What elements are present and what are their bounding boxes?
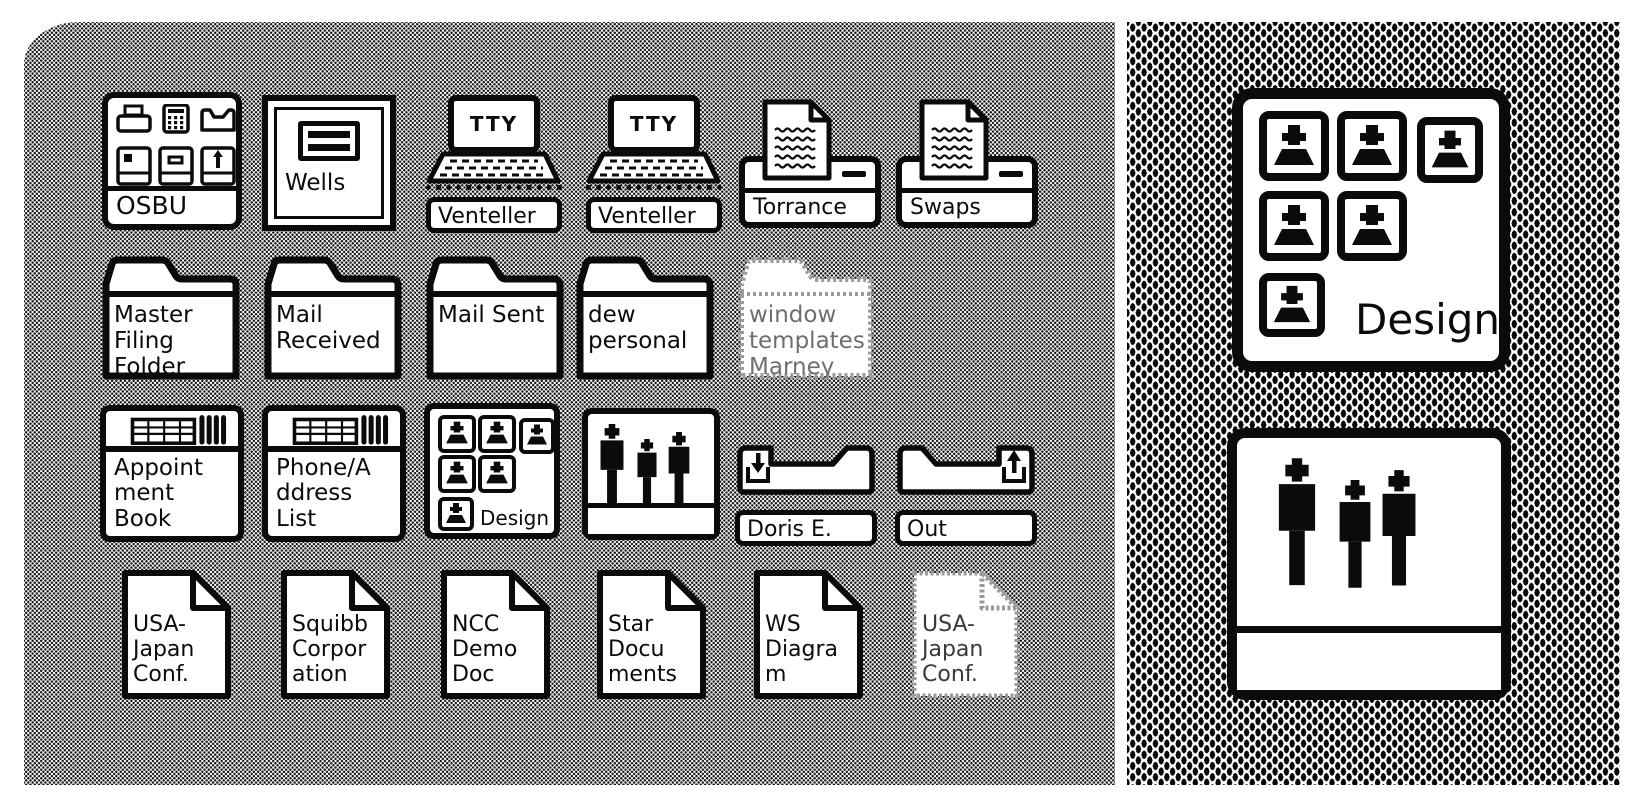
icon-label: USA-Japan Conf. (133, 612, 209, 687)
document-icon (761, 98, 837, 182)
icon-label: Appointment Book (114, 456, 214, 532)
portrait-icon (438, 415, 476, 453)
icon-body: Appointment Book (106, 446, 238, 536)
icon-label: Design (480, 506, 549, 530)
mini-printer-icon (116, 104, 152, 144)
dither-line (586, 185, 722, 190)
folder-icon-dew-personal[interactable]: dew personal (574, 252, 716, 382)
printer-icon-torrance[interactable]: Torrance (739, 98, 881, 228)
icon-label: Venteller (586, 197, 722, 233)
portrait-icon (438, 497, 474, 531)
document-icon-ws-diagram[interactable]: WS Diagram (752, 568, 866, 702)
printer-divider (902, 188, 1032, 193)
icon-label: Swaps (910, 195, 981, 220)
folder-icon-mail-sent[interactable]: Mail Sent (424, 252, 566, 382)
document-icon-usa-japan-conf[interactable]: USA-Japan Conf. (120, 568, 234, 702)
icon-label: Mail Received (276, 302, 394, 354)
folder-icon-mail-received[interactable]: Mail Received (262, 252, 404, 382)
document-icon-star-documents[interactable]: Star Documents (595, 568, 709, 702)
portrait-icon (1259, 273, 1325, 337)
portrait-icon (1417, 117, 1483, 183)
portrait-icon (1337, 111, 1407, 181)
directory-icon-osbu[interactable]: OSBU (102, 92, 242, 230)
document-icon-ncc-demo[interactable]: NCC Demo Doc (439, 568, 553, 702)
magnified-group-directory-icon-design[interactable]: Design (1232, 88, 1510, 372)
icon-label: Out (895, 510, 1037, 546)
mini-record-box-icon (116, 146, 152, 188)
tty-terminal-icon-venteller-2[interactable]: TTY Venteller (586, 95, 722, 233)
tty-terminal-icon-venteller-1[interactable]: TTY Venteller (426, 95, 562, 233)
people-icon-glyph (596, 422, 712, 510)
icon-label: window templates Marney (749, 302, 867, 380)
icon-label: Star Documents (608, 612, 684, 687)
portrait-icon (1337, 191, 1407, 261)
icon-label: OSBU (108, 186, 236, 221)
icon-label: Master Filing Folder (114, 302, 232, 380)
double-bar-icon (298, 121, 360, 161)
document-icon-squibb[interactable]: Squibb Corporation (279, 568, 393, 702)
in-tray-icon-doris[interactable]: Doris E. (735, 440, 877, 546)
card-index-icon (272, 413, 412, 446)
portrait-icon (1259, 191, 1329, 261)
mini-calculator-icon (158, 104, 194, 144)
printer-divider (745, 188, 875, 193)
icon-label: Wells (285, 170, 345, 196)
icon-label: USA-Japan Conf. (922, 612, 998, 687)
portrait-icon (478, 415, 516, 453)
magnified-desktop-area: Design (1127, 22, 1620, 785)
printer-icon-swaps[interactable]: Swaps (896, 98, 1038, 228)
icon-label: Mail Sent (438, 302, 556, 328)
mini-basket-icon (200, 104, 236, 144)
portrait-icon (1259, 111, 1329, 181)
icon-label: Design (1355, 295, 1500, 344)
icon-body: Phone/Address List (268, 446, 400, 536)
icon-label: NCC Demo Doc (452, 612, 528, 687)
icon-label: Torrance (753, 195, 847, 220)
keyboard-icon (426, 151, 562, 185)
icon-label: dew personal (588, 302, 706, 354)
tty-screen: TTY (448, 95, 540, 153)
document-icon (918, 98, 994, 182)
icon-label: Venteller (426, 197, 562, 233)
printer-slot-dash (999, 171, 1023, 177)
portrait-icon (478, 455, 516, 493)
in-tray-shape (735, 440, 877, 496)
magnified-people-directory-icon[interactable] (1227, 428, 1511, 700)
keyboard-icon (586, 151, 722, 185)
out-tray-shape (895, 440, 1037, 496)
document-ghost-icon-usa-japan-conf: USA-Japan Conf. (909, 568, 1023, 702)
mail-drawer-icon-wells[interactable]: Wells (262, 95, 396, 231)
icon-label: Doris E. (735, 510, 877, 546)
icon-label: Phone/Address List (276, 456, 376, 532)
directory-mini-icons (108, 98, 236, 186)
folder-ghost-icon-window-templates: window templates Marney (735, 252, 877, 382)
people-icon-glyph (1257, 456, 1477, 628)
mini-file-drawer-icon (200, 146, 236, 188)
record-file-icon-phone-address-list[interactable]: Phone/Address List (262, 405, 406, 542)
icon-label-band (1237, 626, 1501, 690)
out-tray-icon[interactable]: Out (895, 440, 1037, 546)
dither-line (426, 185, 562, 190)
portrait-icon (438, 455, 476, 493)
icon-label-band (588, 503, 714, 534)
group-directory-icon-design[interactable]: Design (424, 403, 560, 539)
portrait-icon (519, 418, 555, 454)
icon-label: WS Diagram (765, 612, 841, 687)
icon-label: Squibb Corporation (292, 612, 368, 687)
printer-slot-dash (842, 171, 866, 177)
mini-drawer-icon (158, 146, 194, 188)
card-index-icon (110, 413, 250, 446)
tty-screen: TTY (608, 95, 700, 153)
desktop-area: OSBU Wells TTY Venteller TTY Venteller (24, 22, 1115, 785)
wells-inner-frame: Wells (274, 107, 384, 219)
folder-icon-master-filing[interactable]: Master Filing Folder (100, 252, 242, 382)
people-directory-icon[interactable] (582, 408, 720, 540)
record-file-icon-appointment-book[interactable]: Appointment Book (100, 405, 244, 542)
